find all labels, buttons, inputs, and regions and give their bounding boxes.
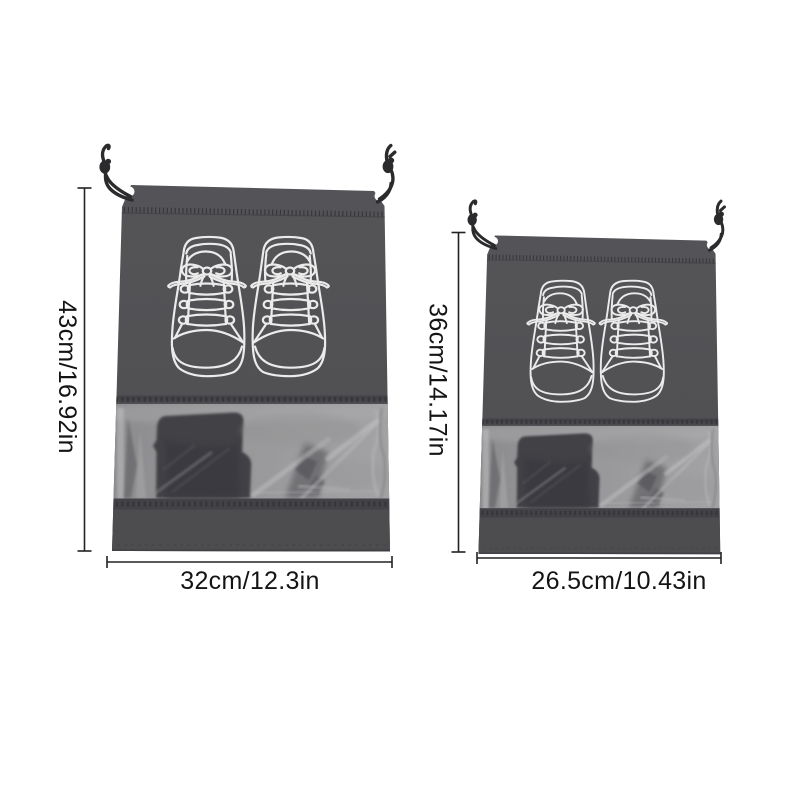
svg-text:36cm/14.17in: 36cm/14.17in xyxy=(424,303,452,457)
svg-text:32cm/12.3in: 32cm/12.3in xyxy=(180,567,320,595)
svg-text:26.5cm/10.43in: 26.5cm/10.43in xyxy=(531,567,706,595)
svg-text:43cm/16.92in: 43cm/16.92in xyxy=(53,300,81,454)
